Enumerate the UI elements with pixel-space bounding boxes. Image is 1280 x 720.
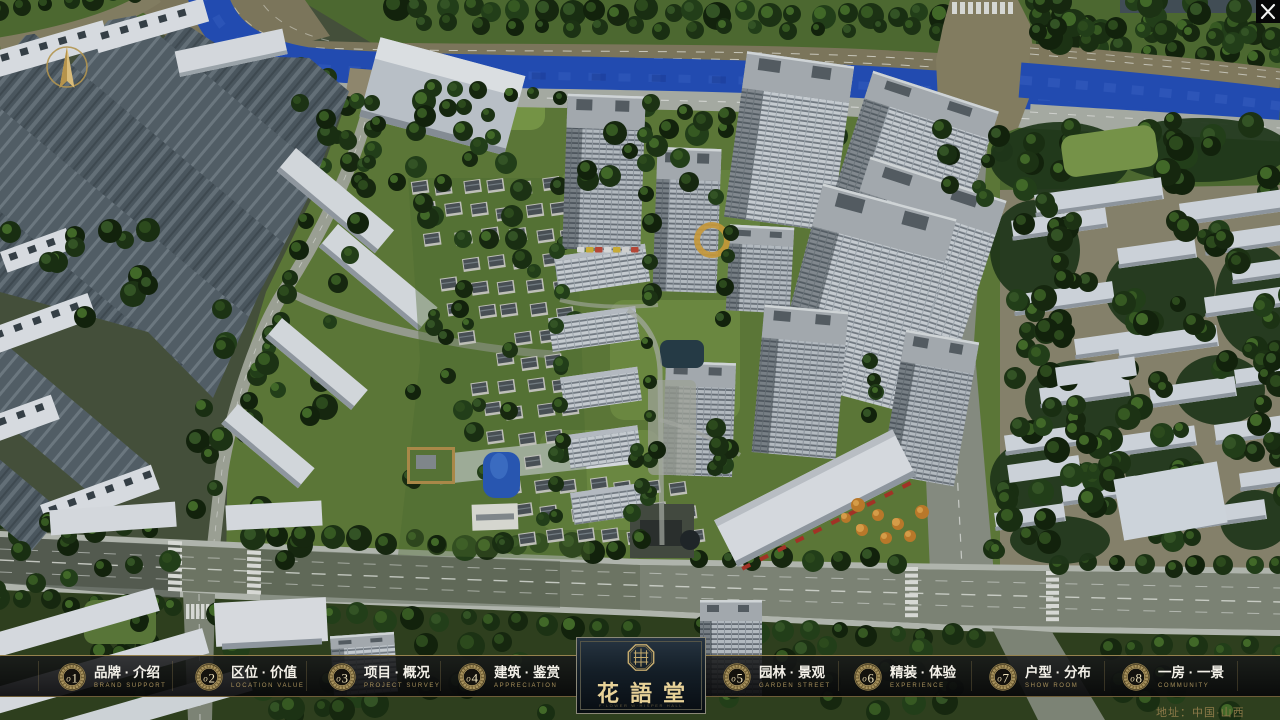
- svg-text:2: 2: [209, 671, 216, 686]
- svg-text:8: 8: [1136, 671, 1143, 686]
- svg-text:4: 4: [472, 671, 479, 686]
- svg-text:3: 3: [342, 671, 349, 686]
- svg-text:o: o: [203, 674, 208, 684]
- svg-text:5: 5: [737, 671, 744, 686]
- svg-text:o: o: [66, 674, 71, 684]
- svg-text:7: 7: [1003, 671, 1010, 686]
- svg-text:6: 6: [868, 671, 875, 686]
- svg-text:o: o: [466, 674, 471, 684]
- svg-text:1: 1: [72, 671, 79, 686]
- svg-text:o: o: [1130, 674, 1135, 684]
- svg-text:o: o: [997, 674, 1002, 684]
- svg-text:o: o: [336, 674, 341, 684]
- svg-text:o: o: [862, 674, 867, 684]
- svg-text:o: o: [731, 674, 736, 684]
